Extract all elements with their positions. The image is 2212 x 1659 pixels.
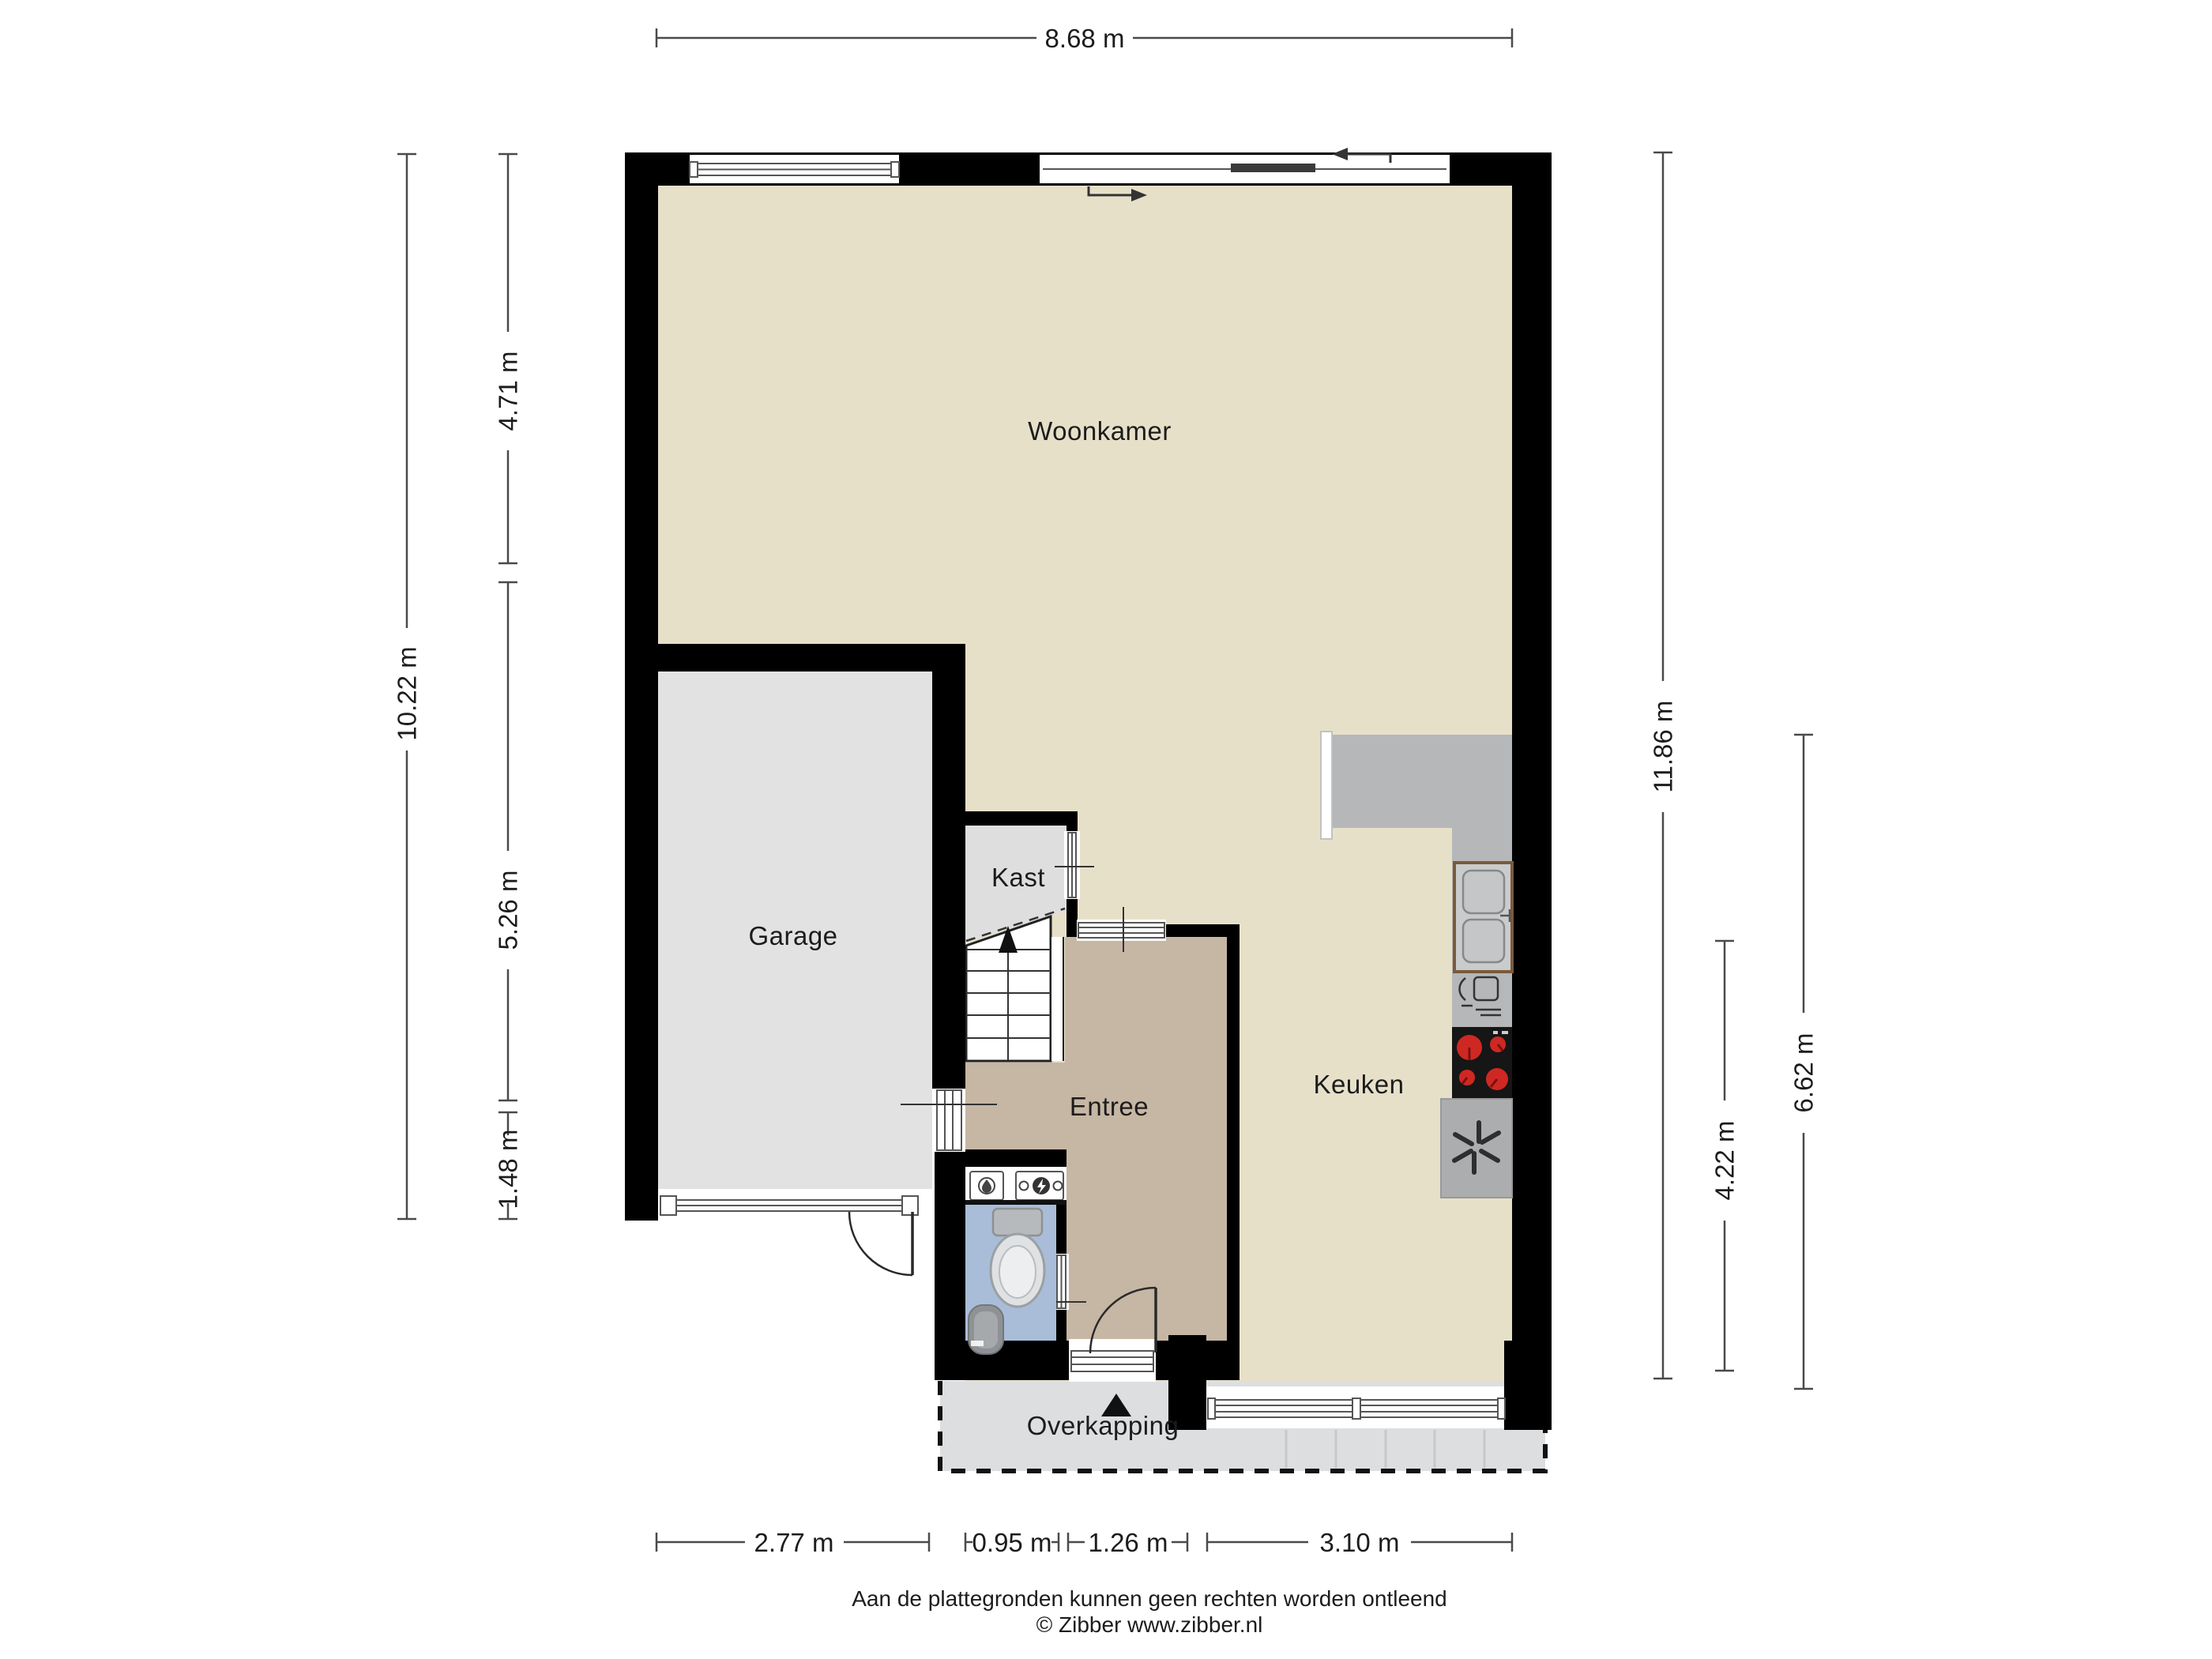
label-garage: Garage [748,921,837,950]
floorplan-page: Woonkamer Garage Kast Entree Keuken Over… [0,0,2212,1659]
dim-right-total: 11.86 m [1649,152,1678,1379]
label-keuken: Keuken [1314,1070,1405,1099]
woonkamer-floor [658,183,1512,645]
dim-right-kitchen: 6.62 m [1789,735,1819,1389]
dim-right-lower: 4.22 m [1710,941,1740,1371]
sliding-door-panel [1231,164,1315,172]
wall-right [1512,152,1552,1428]
wall-garage-right [932,644,965,1089]
footer: Aan de plattegronden kunnen geen rechten… [852,1586,1446,1637]
dim-top-width: 8.68 m [656,24,1512,53]
dim-label-right-lower: 4.22 m [1710,1121,1740,1201]
dim-label-right-kitchen: 6.62 m [1789,1033,1819,1113]
garage-side-door-swing [849,1212,912,1275]
dim-label-left-middle: 5.26 m [494,871,523,950]
garage-front [660,1196,918,1275]
dim-label-bottom-toilet: 0.95 m [972,1528,1052,1557]
dim-label-left-total: 10.22 m [393,646,422,740]
wall-kast-right-lower [1066,899,1078,937]
dim-left-middle: 5.26 m [494,582,523,1100]
label-overkapping: Overkapping [1027,1411,1179,1440]
dim-label-bottom-kitchen: 3.10 m [1320,1528,1400,1557]
dim-label-left-upper: 4.71 m [494,352,523,431]
wall-kast-top [965,811,1077,826]
dim-bottom-row: 2.77 m 0.95 m 1.26 m 3.10 m [656,1528,1512,1557]
footer-disclaimer: Aan de plattegronden kunnen geen rechten… [852,1586,1446,1611]
wall-left [625,152,658,1221]
refrigerator [1441,1099,1512,1198]
kitchen-counter-top [1332,735,1512,828]
wall-toilet-right-lower [1056,1310,1066,1341]
toilet-room [965,1167,1066,1354]
wall-garage-top [658,644,965,671]
dim-label-bottom-garage: 2.77 m [754,1528,834,1557]
wall-entree-right [1227,924,1240,1341]
footer-copyright: © Zibber www.zibber.nl [1036,1612,1263,1637]
dim-label-bottom-entrance: 1.26 m [1089,1528,1168,1557]
toilet-cistern [993,1209,1042,1236]
dim-left-total: 10.22 m [393,154,422,1219]
wall-kast-right-upper [1066,811,1078,831]
counter-end-panel [1321,732,1332,839]
dim-label-top: 8.68 m [1045,24,1125,53]
label-woonkamer: Woonkamer [1028,416,1172,446]
keuken-window [1206,1386,1505,1428]
dim-label-left-lower: 1.48 m [494,1130,523,1209]
label-entree: Entree [1070,1092,1149,1121]
dim-left-upper: 4.71 m [494,154,523,563]
kitchen-sink [1454,863,1512,972]
wall-corner-keuken-right [1504,1341,1552,1430]
stove [1452,1027,1512,1098]
dim-label-right-total: 11.86 m [1649,701,1678,793]
dim-left-lower: 1.48 m [494,1112,523,1219]
floorplan-canvas: Woonkamer Garage Kast Entree Keuken Over… [0,0,2212,1659]
label-kast: Kast [991,863,1045,892]
stair-stringer [1051,937,1063,1061]
